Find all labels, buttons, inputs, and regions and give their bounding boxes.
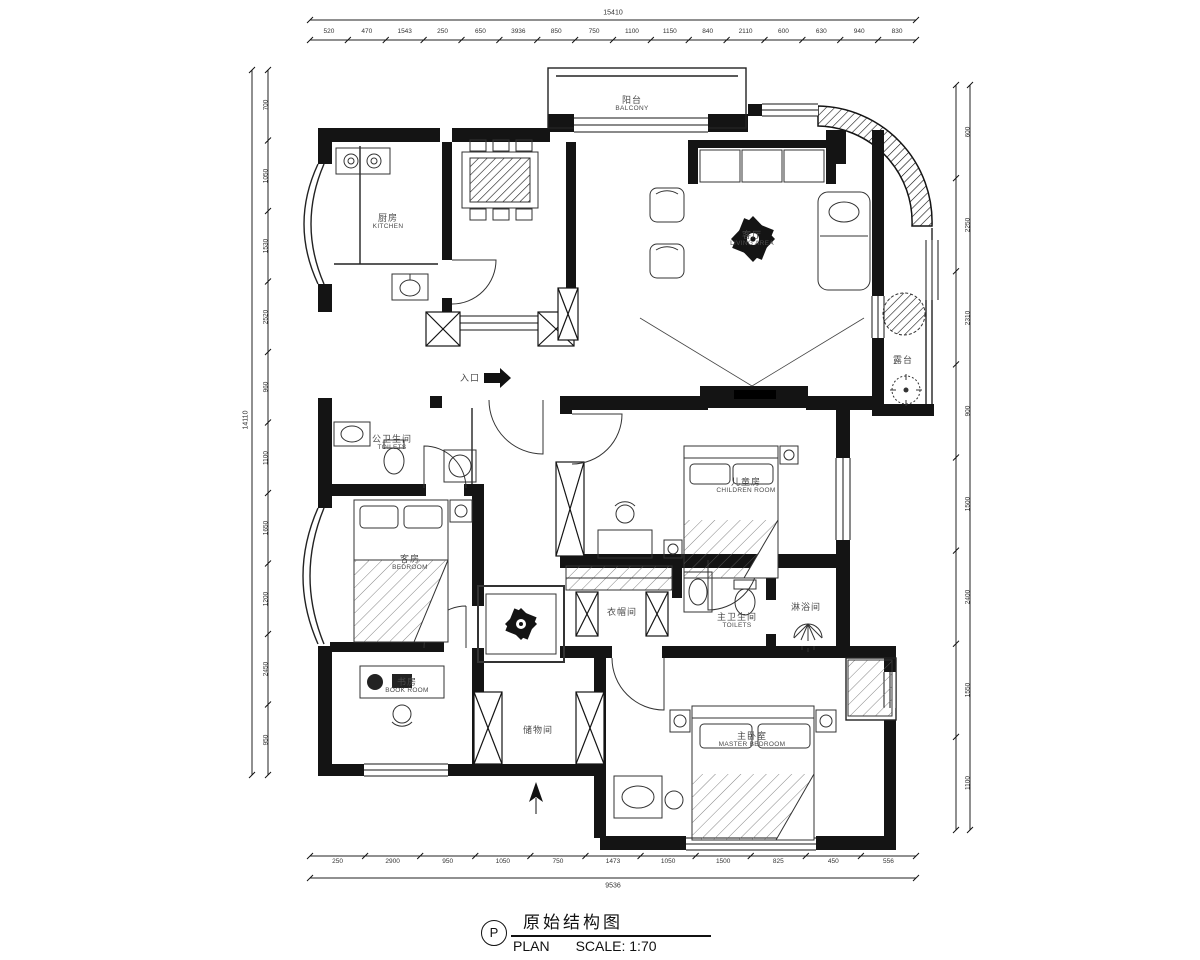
- dim-tick-label: 960: [263, 382, 270, 393]
- left-dim-labels: 7001050153025209601100165012002450950: [261, 70, 271, 775]
- dresser: [614, 776, 683, 818]
- stove: [336, 148, 390, 174]
- top-dim-labels: 5204701543250650393685075011001150840211…: [310, 28, 916, 38]
- dim-tick-label: 950: [263, 734, 270, 745]
- dim-tick-label: 1530: [263, 239, 270, 253]
- guest-bed: [354, 500, 472, 642]
- dim-tick-label: 600: [965, 126, 972, 137]
- dim-tick-label: 2310: [965, 311, 972, 325]
- dim-tick-label: 1543: [397, 28, 411, 35]
- dim-tick-label: 250: [332, 858, 343, 865]
- dim-tick-label: 2110: [739, 28, 753, 35]
- dim-tick-label: 840: [702, 28, 713, 35]
- dim-tick-label: 700: [263, 100, 270, 111]
- plan-label: PLAN: [513, 938, 550, 954]
- children-bed: [664, 446, 798, 578]
- tv: [734, 390, 776, 399]
- dim-tick-label: 1050: [496, 858, 510, 865]
- dining-table: [462, 140, 538, 220]
- dim-tick-label: 2250: [965, 217, 972, 231]
- floorplan-page: 阳台 BALCONY 厨房 KITCHEN 客厅 LIVING AREA 露台 …: [0, 0, 1200, 960]
- dim-tick-label: 600: [778, 28, 789, 35]
- dim-tick-label: 2520: [263, 310, 270, 324]
- dim-tick-label: 850: [551, 28, 562, 35]
- children-desk: [598, 502, 652, 558]
- dim-tick-label: 1650: [263, 521, 270, 535]
- dim-tick-label: 940: [854, 28, 865, 35]
- dim-tick-label: 750: [589, 28, 600, 35]
- dim-tick-label: 750: [552, 858, 563, 865]
- dim-tick-label: 950: [442, 858, 453, 865]
- dim-tick-label: 900: [965, 406, 972, 417]
- north-arrow-icon: [529, 782, 543, 814]
- dim-tick-label: 1150: [663, 28, 677, 35]
- plan-symbol: P: [481, 920, 507, 946]
- dim-tick-label: 650: [475, 28, 486, 35]
- top-dim-total: 15410: [603, 10, 622, 17]
- dim-tick-label: 1100: [625, 28, 639, 35]
- drawing-title: 原始结构图: [523, 908, 711, 933]
- scale-label: SCALE: 1:70: [576, 938, 657, 954]
- dim-tick-label: 1500: [965, 497, 972, 511]
- dim-tick-label: 825: [773, 858, 784, 865]
- terrace-plants: [883, 293, 925, 406]
- floorplan-drawing: [0, 0, 1200, 960]
- bottom-dim-labels: 25029009501050750147310501500825450556: [310, 858, 916, 868]
- dim-tick-label: 450: [828, 858, 839, 865]
- bay-bench: [848, 660, 892, 716]
- dim-tick-label: 1500: [716, 858, 730, 865]
- dim-tick-label: 1100: [965, 776, 972, 790]
- kitchen-sink: [392, 274, 428, 300]
- title-underline: [511, 935, 711, 937]
- toilet-fixtures: [334, 422, 476, 482]
- dim-tick-label: 520: [324, 28, 335, 35]
- title-block: 原始结构图 PLAN SCALE: 1:70 P: [481, 908, 711, 954]
- dim-tick-label: 2400: [965, 590, 972, 604]
- dim-tick-label: 1050: [263, 169, 270, 183]
- dim-tick-label: 3936: [511, 28, 525, 35]
- dim-tick-label: 1200: [263, 592, 270, 606]
- bottom-dim-total: 9536: [605, 883, 621, 890]
- right-dim-labels: 600225023109001500240015501100: [963, 85, 973, 830]
- dim-tick-label: 830: [892, 28, 903, 35]
- dim-tick-label: 470: [361, 28, 372, 35]
- dim-tick-label: 630: [816, 28, 827, 35]
- cloakroom-racks: [566, 566, 672, 590]
- armchairs: [650, 188, 684, 278]
- chaise: [818, 192, 870, 290]
- corridor-medallion: [478, 586, 564, 662]
- dim-tick-label: 250: [437, 28, 448, 35]
- dim-tick-label: 2900: [385, 858, 399, 865]
- dim-tick-label: 556: [883, 858, 894, 865]
- sofa: [688, 140, 836, 184]
- entry-arrow-icon: [484, 368, 511, 388]
- shaft-boxes: [426, 288, 668, 764]
- dim-tick-label: 1473: [606, 858, 620, 865]
- tv-sight-lines: [640, 318, 864, 386]
- dim-tick-label: 2450: [263, 662, 270, 676]
- left-dim-total: 14110: [243, 411, 250, 430]
- dim-tick-label: 1550: [965, 683, 972, 697]
- coffee-table-medallion: [731, 216, 775, 262]
- dim-tick-label: 1100: [263, 451, 270, 465]
- desk: [360, 666, 444, 726]
- master-bed: [670, 706, 836, 840]
- dim-tick-label: 1050: [661, 858, 675, 865]
